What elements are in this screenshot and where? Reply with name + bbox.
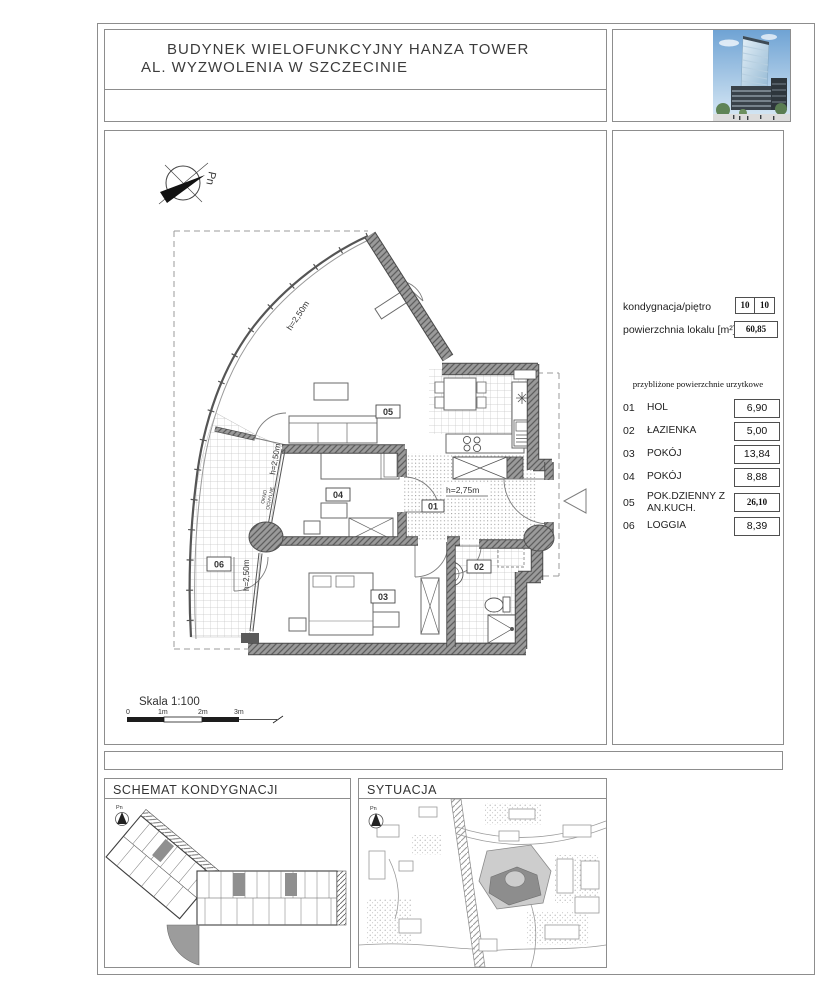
floor-value-2: 10	[754, 297, 775, 314]
scale-label: Skala 1:100	[139, 696, 200, 708]
room-area: 8,88	[734, 468, 780, 487]
room-name: POKÓJ	[647, 448, 733, 460]
building-render-image	[713, 30, 790, 121]
svg-text:01: 01	[428, 502, 438, 512]
hall-wall-block	[507, 457, 523, 479]
svg-text:05: 05	[383, 407, 393, 417]
room-label-04: 04	[326, 488, 350, 501]
building-photo-block	[612, 29, 791, 122]
loggia-sill-block	[241, 633, 259, 643]
room-area: 8,39	[734, 517, 780, 536]
room-label-03: 03	[371, 590, 395, 603]
bedroom03-furniture	[289, 573, 439, 635]
svg-text:1m: 1m	[158, 709, 168, 716]
bedroom04-furniture	[304, 451, 399, 540]
north-arrow: Pn	[159, 163, 218, 204]
room-label-02: 02	[467, 560, 491, 573]
title-divider	[105, 89, 606, 90]
svg-text:h=2,75m: h=2,75m	[446, 485, 479, 495]
dim-hall-height: h=2,75m	[444, 484, 490, 497]
room-name: LOGGIA	[647, 520, 733, 532]
room-area: 5,00	[734, 422, 780, 441]
title-block: BUDYNEK WIELOFUNKCYJNY HANZA TOWER AL. W…	[104, 29, 607, 122]
dim-curve-height: h=2,50m	[284, 299, 311, 332]
room-area: 26,10	[734, 493, 780, 512]
floor-plan-panel: 05 04 01 06 03 02 h=2,50m h=2,50m OKNO O…	[104, 130, 607, 745]
right-wing	[197, 871, 346, 925]
hall-wardrobe-icon	[453, 457, 507, 479]
svg-text:3m: 3m	[234, 709, 244, 716]
areas-subheader: przybliżone powierzchnie urzytkowe	[613, 379, 783, 389]
project-title: BUDYNEK WIELOFUNKCYJNY HANZA TOWER	[105, 30, 606, 58]
plan-sheet-page: { "header": { "title_line1": "BUDYNEK WI…	[0, 0, 818, 1000]
project-address: AL. WYZWOLENIA W SZCZECINIE	[105, 58, 606, 76]
scale-bar: Skala 1:100 0 1m 2m 3m	[126, 696, 283, 723]
svg-text:04: 04	[333, 490, 343, 500]
svg-text:2m: 2m	[198, 709, 208, 716]
room-area: 6,90	[734, 399, 780, 418]
toilet-icon	[485, 598, 503, 612]
site-map-drawing: Pn	[359, 799, 606, 967]
room-no: 05	[623, 497, 635, 509]
room-name: ŁAZIENKA	[647, 425, 733, 437]
north-label: Pn	[203, 170, 218, 186]
room-no: 03	[623, 448, 635, 460]
svg-text:0: 0	[126, 709, 130, 716]
sytuacja-panel: SYTUACJA	[358, 778, 607, 968]
highlighted-unit	[167, 925, 199, 965]
room-no: 02	[623, 425, 635, 437]
schemat-panel: SCHEMAT KONDYGNACJI Pn	[104, 778, 351, 968]
floor-plan-drawing: 05 04 01 06 03 02 h=2,50m h=2,50m OKNO O…	[105, 131, 606, 744]
sytuacja-north-arrow: Pn	[369, 806, 383, 828]
wall-niche-window	[514, 370, 536, 379]
wardrobe03-icon	[421, 578, 439, 634]
room-no: 04	[623, 471, 635, 483]
svg-text:03: 03	[378, 592, 388, 602]
svg-text:02: 02	[474, 562, 484, 572]
room-name: HOL	[647, 402, 733, 414]
livingroom-furniture	[289, 287, 415, 443]
schemat-north-label: Pn	[116, 805, 123, 811]
floor-label: kondygnacja/piętro	[623, 301, 711, 313]
room-area: 13,84	[734, 445, 780, 464]
room-no: 01	[623, 402, 635, 414]
room-no: 06	[623, 520, 635, 532]
room-name: POK.DZIENNY Z AN.KUCH.	[647, 491, 733, 514]
info-panel: kondygnacja/piętro 10 10 powierzchnia lo…	[612, 130, 784, 745]
area-label: powierzchnia lokalu [m²]	[623, 324, 736, 336]
site-highlight	[479, 845, 551, 909]
room-label-01: 01	[422, 500, 444, 512]
floor-value-1: 10	[735, 297, 755, 314]
area-value: 60,85	[734, 321, 778, 338]
empty-strip	[104, 751, 783, 770]
room-name: POKÓJ	[647, 471, 733, 483]
schemat-north-arrow: Pn	[116, 805, 129, 826]
schemat-title: SCHEMAT KONDYGNACJI	[105, 779, 350, 799]
floor-schematic-drawing: Pn	[105, 799, 350, 967]
svg-text:06: 06	[214, 560, 224, 570]
room-label-05: 05	[376, 405, 400, 418]
sytuacja-title: SYTUACJA	[359, 779, 606, 799]
dim-loggia-height: h=2,50m	[242, 559, 251, 591]
sytuacja-north-label: Pn	[370, 806, 377, 812]
room-label-06: 06	[207, 557, 231, 571]
entry-arrow-icon	[564, 489, 586, 513]
